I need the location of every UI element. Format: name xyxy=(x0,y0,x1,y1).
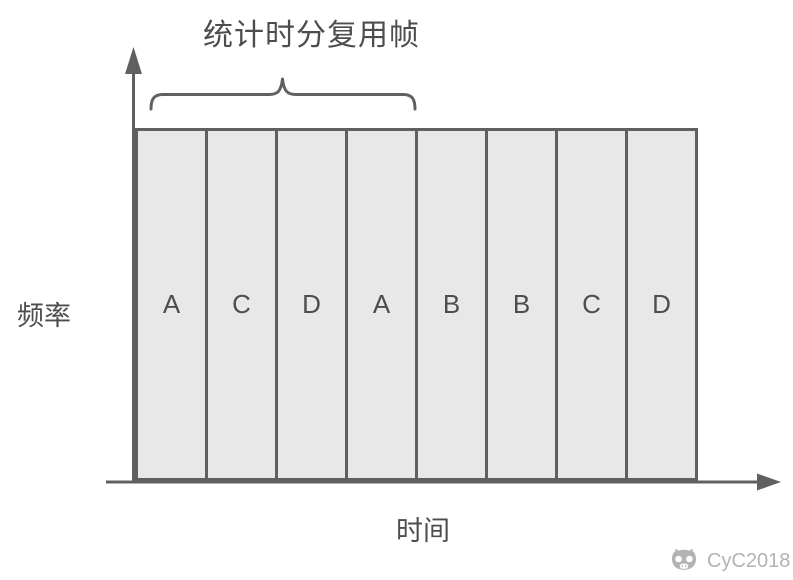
x-axis-label: 时间 xyxy=(396,509,450,548)
up-arrow-icon xyxy=(125,47,142,74)
y-axis-label: 频率 xyxy=(17,294,71,333)
frame-slot: B xyxy=(415,128,488,481)
watermark: CyC2018 xyxy=(668,548,790,574)
cat-logo-icon xyxy=(668,548,700,574)
diagram-title: 统计时分复用帧 xyxy=(203,10,420,54)
brace-icon xyxy=(151,79,415,109)
diagram-canvas: 统计时分复用帧 A C D A B B C D 频率 时间 CyC2018 xyxy=(0,0,793,580)
frame-slot: B xyxy=(485,128,558,481)
frame-slot: D xyxy=(625,128,698,481)
frame-slot: A xyxy=(345,128,418,481)
frame-slot: A xyxy=(135,128,208,481)
right-arrow-icon xyxy=(757,474,781,491)
frame-slot: D xyxy=(275,128,348,481)
watermark-text: CyC2018 xyxy=(707,550,790,573)
frame-slot: C xyxy=(205,128,278,481)
frame-slot: C xyxy=(555,128,628,481)
frame-slots-row: A C D A B B C D xyxy=(135,128,698,481)
